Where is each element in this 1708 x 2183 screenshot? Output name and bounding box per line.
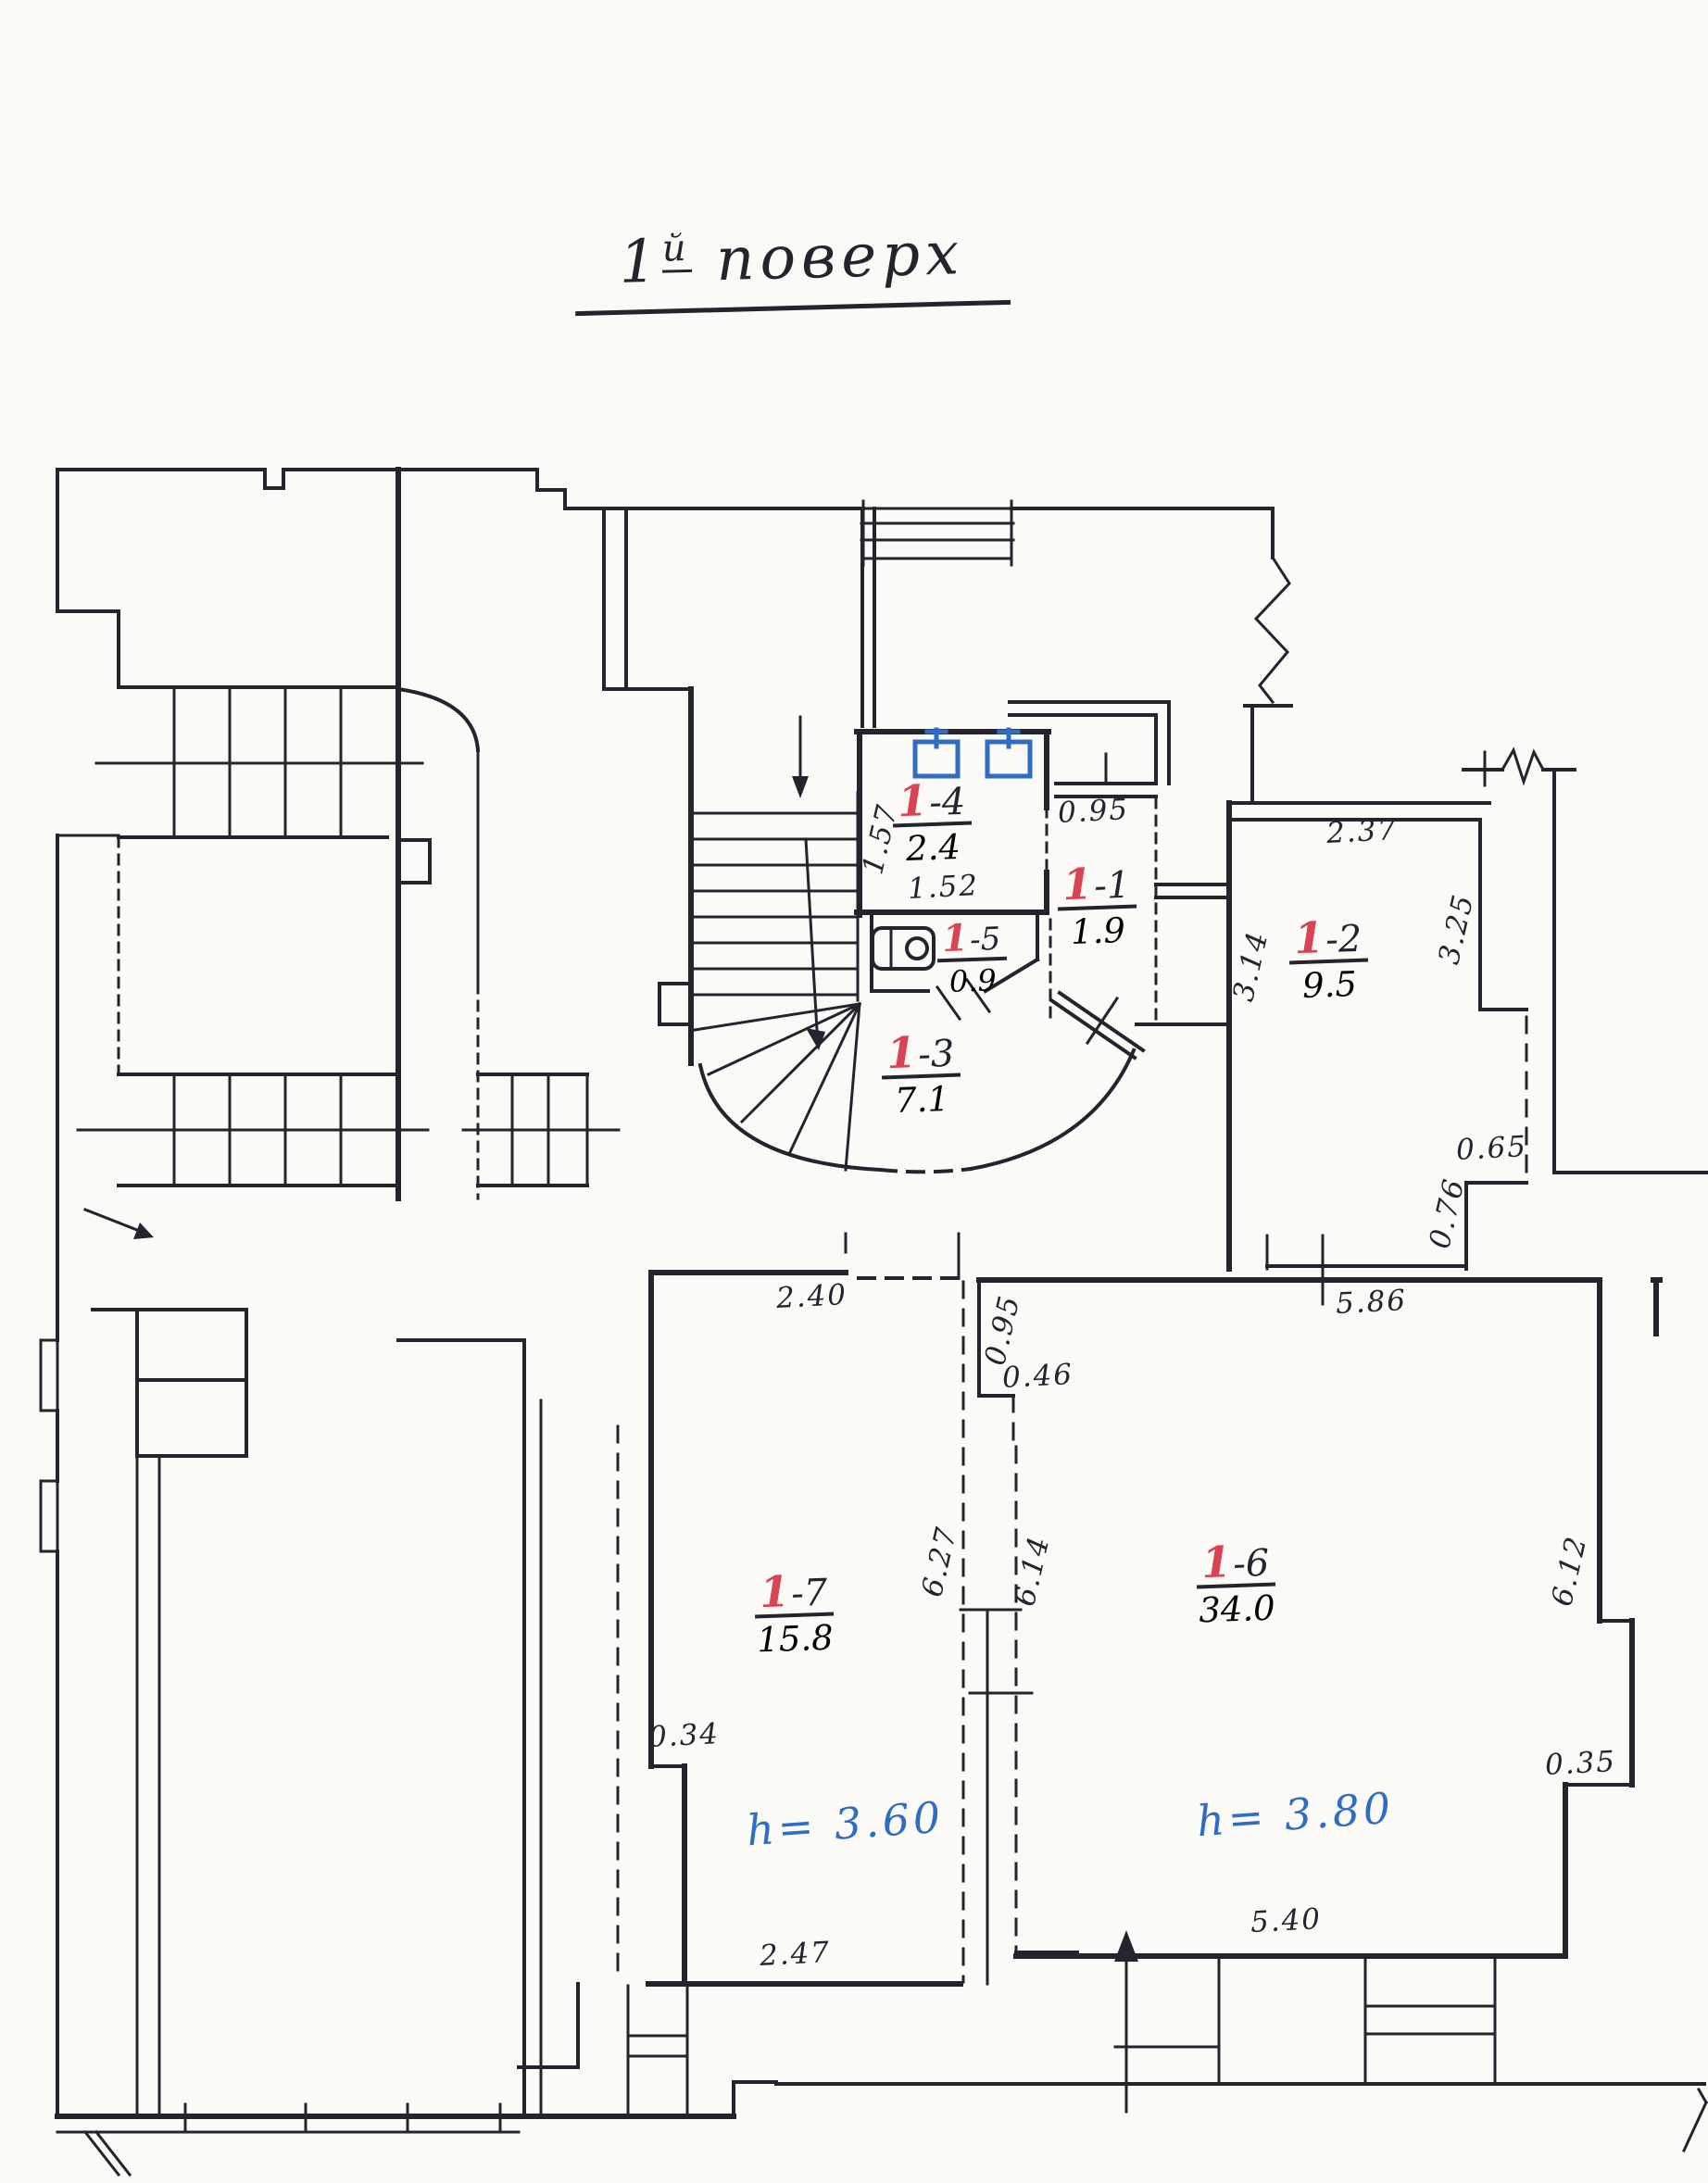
dimension: 5.40 bbox=[1250, 1902, 1323, 1939]
room-label-1-5: 1-5 0.9 bbox=[936, 918, 1009, 1000]
dimension: 1.52 bbox=[907, 869, 980, 906]
title-superscript: й bbox=[661, 227, 692, 273]
room-area: 1.9 bbox=[1058, 909, 1138, 953]
window-icon bbox=[628, 1986, 687, 2116]
room-label-1-2: 1-2 9.5 bbox=[1287, 914, 1369, 1007]
winder-steps bbox=[695, 1004, 860, 1170]
window-icon bbox=[861, 501, 1013, 565]
room-area: 9.5 bbox=[1289, 962, 1370, 1007]
dimension: 0.46 bbox=[1001, 1358, 1074, 1395]
window-icon bbox=[1115, 1956, 1495, 2084]
centre-party-wall bbox=[398, 470, 478, 1198]
room-suffix: -6 bbox=[1232, 1542, 1270, 1586]
room-area: 7.1 bbox=[882, 1077, 962, 1122]
dimension: 2.37 bbox=[1325, 813, 1399, 850]
wall-break-icon bbox=[1684, 2089, 1706, 2151]
stair-hall-walls bbox=[604, 508, 691, 1063]
room-number: 1 bbox=[885, 1027, 919, 1078]
title-word: поверх bbox=[691, 220, 965, 295]
room-label-1-1: 1-1 1.9 bbox=[1056, 860, 1137, 953]
main-staircase bbox=[695, 793, 858, 1000]
sink-unit-icon bbox=[873, 928, 934, 969]
dimension: 5.86 bbox=[1335, 1284, 1408, 1321]
room-suffix: -3 bbox=[917, 1033, 955, 1076]
room-area: 0.9 bbox=[937, 960, 1008, 1000]
room-suffix: -1 bbox=[1093, 864, 1131, 908]
porch-walls bbox=[519, 1984, 1704, 2116]
old-wing-lower bbox=[41, 1310, 734, 2175]
room-number: 1 bbox=[759, 1566, 792, 1617]
dimension: 2.47 bbox=[759, 1936, 832, 1973]
floor-plan-drawing bbox=[0, 0, 1708, 2183]
room-suffix: -7 bbox=[790, 1572, 828, 1615]
room-suffix: -4 bbox=[928, 781, 966, 824]
room-number: 1 bbox=[1293, 912, 1326, 963]
floor-plan-sheet: 1й поверх 1-4 2.4 1-1 1.9 1-2 9.5 1-5 0.… bbox=[0, 0, 1708, 2183]
room-label-1-4: 1-4 2.4 bbox=[891, 777, 973, 870]
washbasin-icon bbox=[915, 730, 958, 776]
room-number: 1 bbox=[1200, 1537, 1234, 1587]
room-suffix: -5 bbox=[969, 921, 1001, 959]
wall-break-icon bbox=[1463, 750, 1708, 1173]
room-area: 2.4 bbox=[893, 825, 973, 870]
stair-arrow-curve-icon bbox=[806, 839, 825, 1050]
dimension: 0.65 bbox=[1455, 1130, 1528, 1167]
room-label-1-3: 1-3 7.1 bbox=[880, 1029, 961, 1122]
room-area: 34.0 bbox=[1197, 1587, 1277, 1631]
room-area: 15.8 bbox=[755, 1616, 835, 1661]
stair-arrow-down-icon bbox=[792, 717, 809, 798]
room-number: 1 bbox=[941, 916, 970, 960]
room-suffix: -2 bbox=[1325, 918, 1363, 961]
room-1-6-walls bbox=[979, 1280, 1660, 1956]
room-number: 1 bbox=[1061, 859, 1095, 910]
wall-break-icon bbox=[1245, 558, 1291, 803]
dimension: 0.34 bbox=[647, 1717, 721, 1754]
room-1-2-walls bbox=[1229, 803, 1526, 1304]
washbasin-icon bbox=[987, 730, 1030, 776]
dimension: 2.40 bbox=[775, 1278, 848, 1315]
title-number: 1 bbox=[618, 228, 663, 297]
old-wing-stairs bbox=[78, 687, 619, 1186]
dimension: 0.95 bbox=[1057, 793, 1130, 830]
direction-arrow-icon bbox=[85, 1210, 154, 1239]
page-title: 1й поверх bbox=[573, 219, 1011, 316]
room-label-1-6: 1-6 34.0 bbox=[1195, 1538, 1276, 1631]
dimension: 0.35 bbox=[1544, 1745, 1617, 1782]
room-label-1-7: 1-7 15.8 bbox=[753, 1568, 835, 1661]
